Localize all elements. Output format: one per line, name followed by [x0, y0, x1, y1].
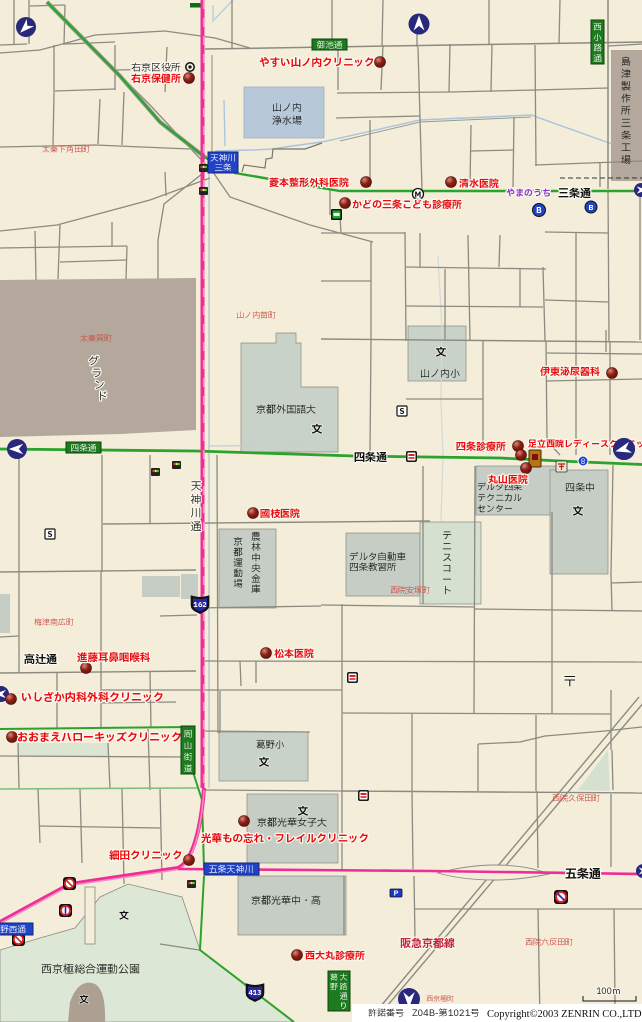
svg-text:松本医院: 松本医院	[274, 647, 315, 662]
svg-text:ド: ド	[97, 388, 108, 405]
svg-text:通: 通	[593, 53, 602, 66]
svg-text:8: 8	[581, 458, 585, 468]
svg-text:かどの三条こども診療所: かどの三条こども診療所	[352, 198, 462, 213]
svg-text:文: 文	[118, 909, 129, 924]
svg-text:いしざか内科外科クリニック: いしざか内科外科クリニック	[21, 689, 164, 706]
svg-text:五条通: 五条通	[565, 866, 601, 884]
svg-text:山ノ内小: 山ノ内小	[420, 367, 460, 382]
svg-text:西院安塚町: 西院安塚町	[390, 585, 430, 597]
svg-text:浄水場: 浄水場	[272, 114, 302, 129]
svg-text:西京極総合運動公園: 西京極総合運動公園	[41, 961, 140, 978]
svg-text:P: P	[394, 890, 399, 900]
svg-text:阪急京都線: 阪急京都線	[400, 935, 455, 952]
svg-text:センター: センター	[477, 502, 513, 516]
svg-text:西院六反田町: 西院六反田町	[525, 937, 573, 949]
svg-text:梅津南広町: 梅津南広町	[34, 617, 74, 629]
svg-text:Copyright©2003 ZENRIN CO.,LTD.: Copyright©2003 ZENRIN CO.,LTD.	[487, 1009, 642, 1020]
svg-text:三条通: 三条通	[558, 185, 591, 202]
svg-text:おおまえハローキッズクリニック: おおまえハローキッズクリニック	[17, 729, 182, 746]
svg-text:四条診療所: 四条診療所	[456, 440, 506, 455]
svg-text:野: 野	[330, 982, 338, 994]
svg-text:伊東泌尿器科: 伊東泌尿器科	[539, 365, 600, 380]
svg-text:文: 文	[572, 503, 584, 520]
svg-text:り: り	[340, 1001, 348, 1013]
svg-text:B: B	[589, 204, 594, 214]
svg-text:葛野小: 葛野小	[256, 739, 285, 753]
svg-text:五条天神川: 五条天神川	[208, 863, 253, 877]
svg-text:100m: 100m	[596, 985, 620, 998]
svg-text:S: S	[399, 406, 405, 418]
svg-text:太秦巽町: 太秦巽町	[79, 333, 112, 345]
svg-text:京都光華中・高: 京都光華中・高	[251, 894, 321, 909]
svg-text:菱本整形外科医院: 菱本整形外科医院	[268, 176, 350, 191]
svg-text:右京保健所: 右京保健所	[131, 72, 181, 87]
svg-text:山ノ内苗町: 山ノ内苗町	[236, 310, 276, 322]
svg-text:野西通: 野西通	[0, 924, 26, 937]
svg-text:細田クリニック: 細田クリニック	[109, 848, 183, 864]
svg-text:丸山医院: 丸山医院	[488, 473, 529, 488]
svg-text:四条通: 四条通	[354, 449, 387, 466]
svg-text:162: 162	[193, 601, 207, 611]
svg-text:場: 場	[621, 153, 631, 168]
svg-text:四条通: 四条通	[71, 442, 97, 455]
svg-text:文: 文	[435, 344, 447, 361]
svg-text:文: 文	[311, 421, 323, 438]
svg-text:〒: 〒	[563, 672, 576, 692]
svg-text:四条中: 四条中	[565, 481, 595, 496]
svg-text:京都光華女子大: 京都光華女子大	[257, 816, 327, 831]
svg-text:413: 413	[248, 989, 261, 999]
svg-text:御池通: 御池通	[317, 39, 343, 52]
svg-text:京都外国語大: 京都外国語大	[256, 403, 316, 418]
svg-text:やすい山ノ内クリニック: やすい山ノ内クリニック	[259, 55, 375, 71]
svg-text:光華もの忘れ・フレイルクリニック: 光華もの忘れ・フレイルクリニック	[201, 831, 369, 847]
svg-text:文: 文	[258, 754, 270, 771]
svg-text:太秦下角田町: 太秦下角田町	[41, 144, 90, 156]
svg-text:西大丸診療所: 西大丸診療所	[305, 949, 365, 964]
svg-text:ト: ト	[442, 584, 452, 599]
svg-text:S: S	[47, 529, 53, 541]
svg-text:Z04B-第1021号: Z04B-第1021号	[412, 1006, 479, 1020]
svg-text:文: 文	[78, 993, 89, 1008]
svg-text:清水医院: 清水医院	[459, 177, 500, 192]
svg-text:B: B	[536, 205, 542, 217]
svg-text:四条教習所: 四条教習所	[349, 562, 397, 576]
svg-text:やまのうち: やまのうち	[506, 186, 551, 200]
svg-text:國枝医院: 國枝医院	[260, 507, 301, 522]
svg-text:高辻通: 高辻通	[24, 651, 57, 668]
svg-text:道: 道	[184, 763, 193, 776]
svg-text:西京極町: 西京極町	[426, 994, 454, 1005]
svg-text:通: 通	[191, 519, 202, 536]
svg-text:三条: 三条	[214, 162, 232, 175]
svg-text:進藤耳鼻咽喉科: 進藤耳鼻咽喉科	[77, 650, 151, 666]
svg-text:許諾番号: 許諾番号	[368, 1006, 404, 1020]
svg-text:庫: 庫	[251, 584, 261, 598]
svg-text:場: 場	[233, 578, 243, 592]
svg-text:西院久保田町: 西院久保田町	[552, 793, 600, 805]
